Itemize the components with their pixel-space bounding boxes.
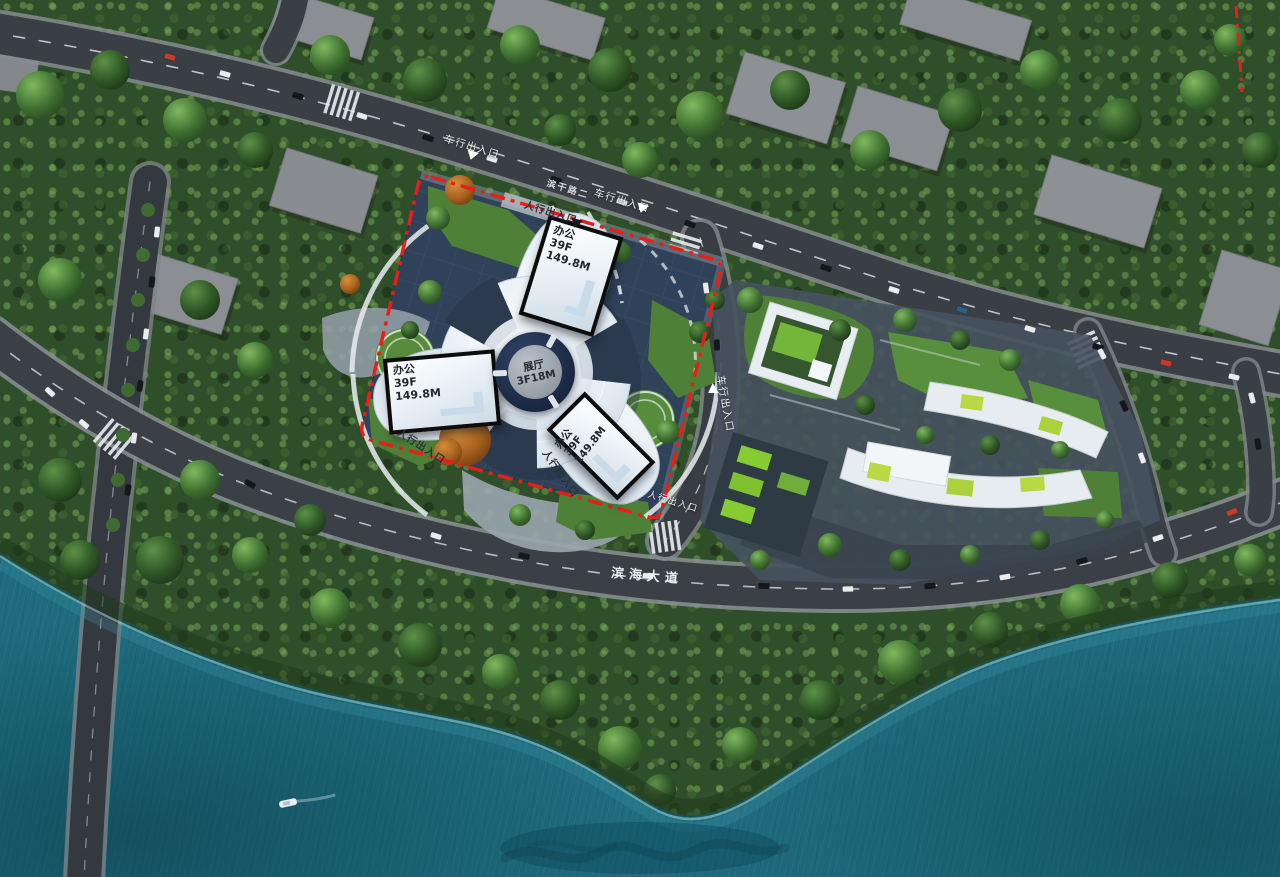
- roof-core-mark: [564, 276, 595, 318]
- spoke-mark: [547, 394, 560, 409]
- exhibition-hall-label: 展厅 3F18M: [495, 332, 575, 412]
- roof-core-mark: [593, 445, 631, 483]
- tower-label: 办公 39F 149.8M: [392, 361, 441, 404]
- spoke-mark: [545, 334, 557, 349]
- road-name-north-road: 滨干路二: [545, 176, 591, 201]
- office-tower-north: 办公 39F 149.8M: [519, 215, 624, 337]
- masterplan-render: 办公 39F 149.8M 办公 39F 149.8M 办公 39F 149.8…: [0, 0, 1280, 877]
- exhibition-hall-text: 展厅 3F18M: [503, 340, 567, 404]
- spoke-mark: [493, 370, 507, 376]
- tower-label: 办公 39F 149.8M: [544, 224, 599, 275]
- pedestrian-entrance-marker-southeast: 人行出入口: [646, 487, 700, 515]
- vehicle-entrance-marker-east: 车行出入口: [714, 374, 739, 433]
- roof-core-mark: [439, 392, 484, 417]
- office-tower-west: 办公 39F 149.8M: [383, 349, 501, 434]
- labels-layer: 办公 39F 149.8M 办公 39F 149.8M 办公 39F 149.8…: [0, 0, 1280, 877]
- road-name-coastal-avenue: 滨海大道: [610, 562, 683, 587]
